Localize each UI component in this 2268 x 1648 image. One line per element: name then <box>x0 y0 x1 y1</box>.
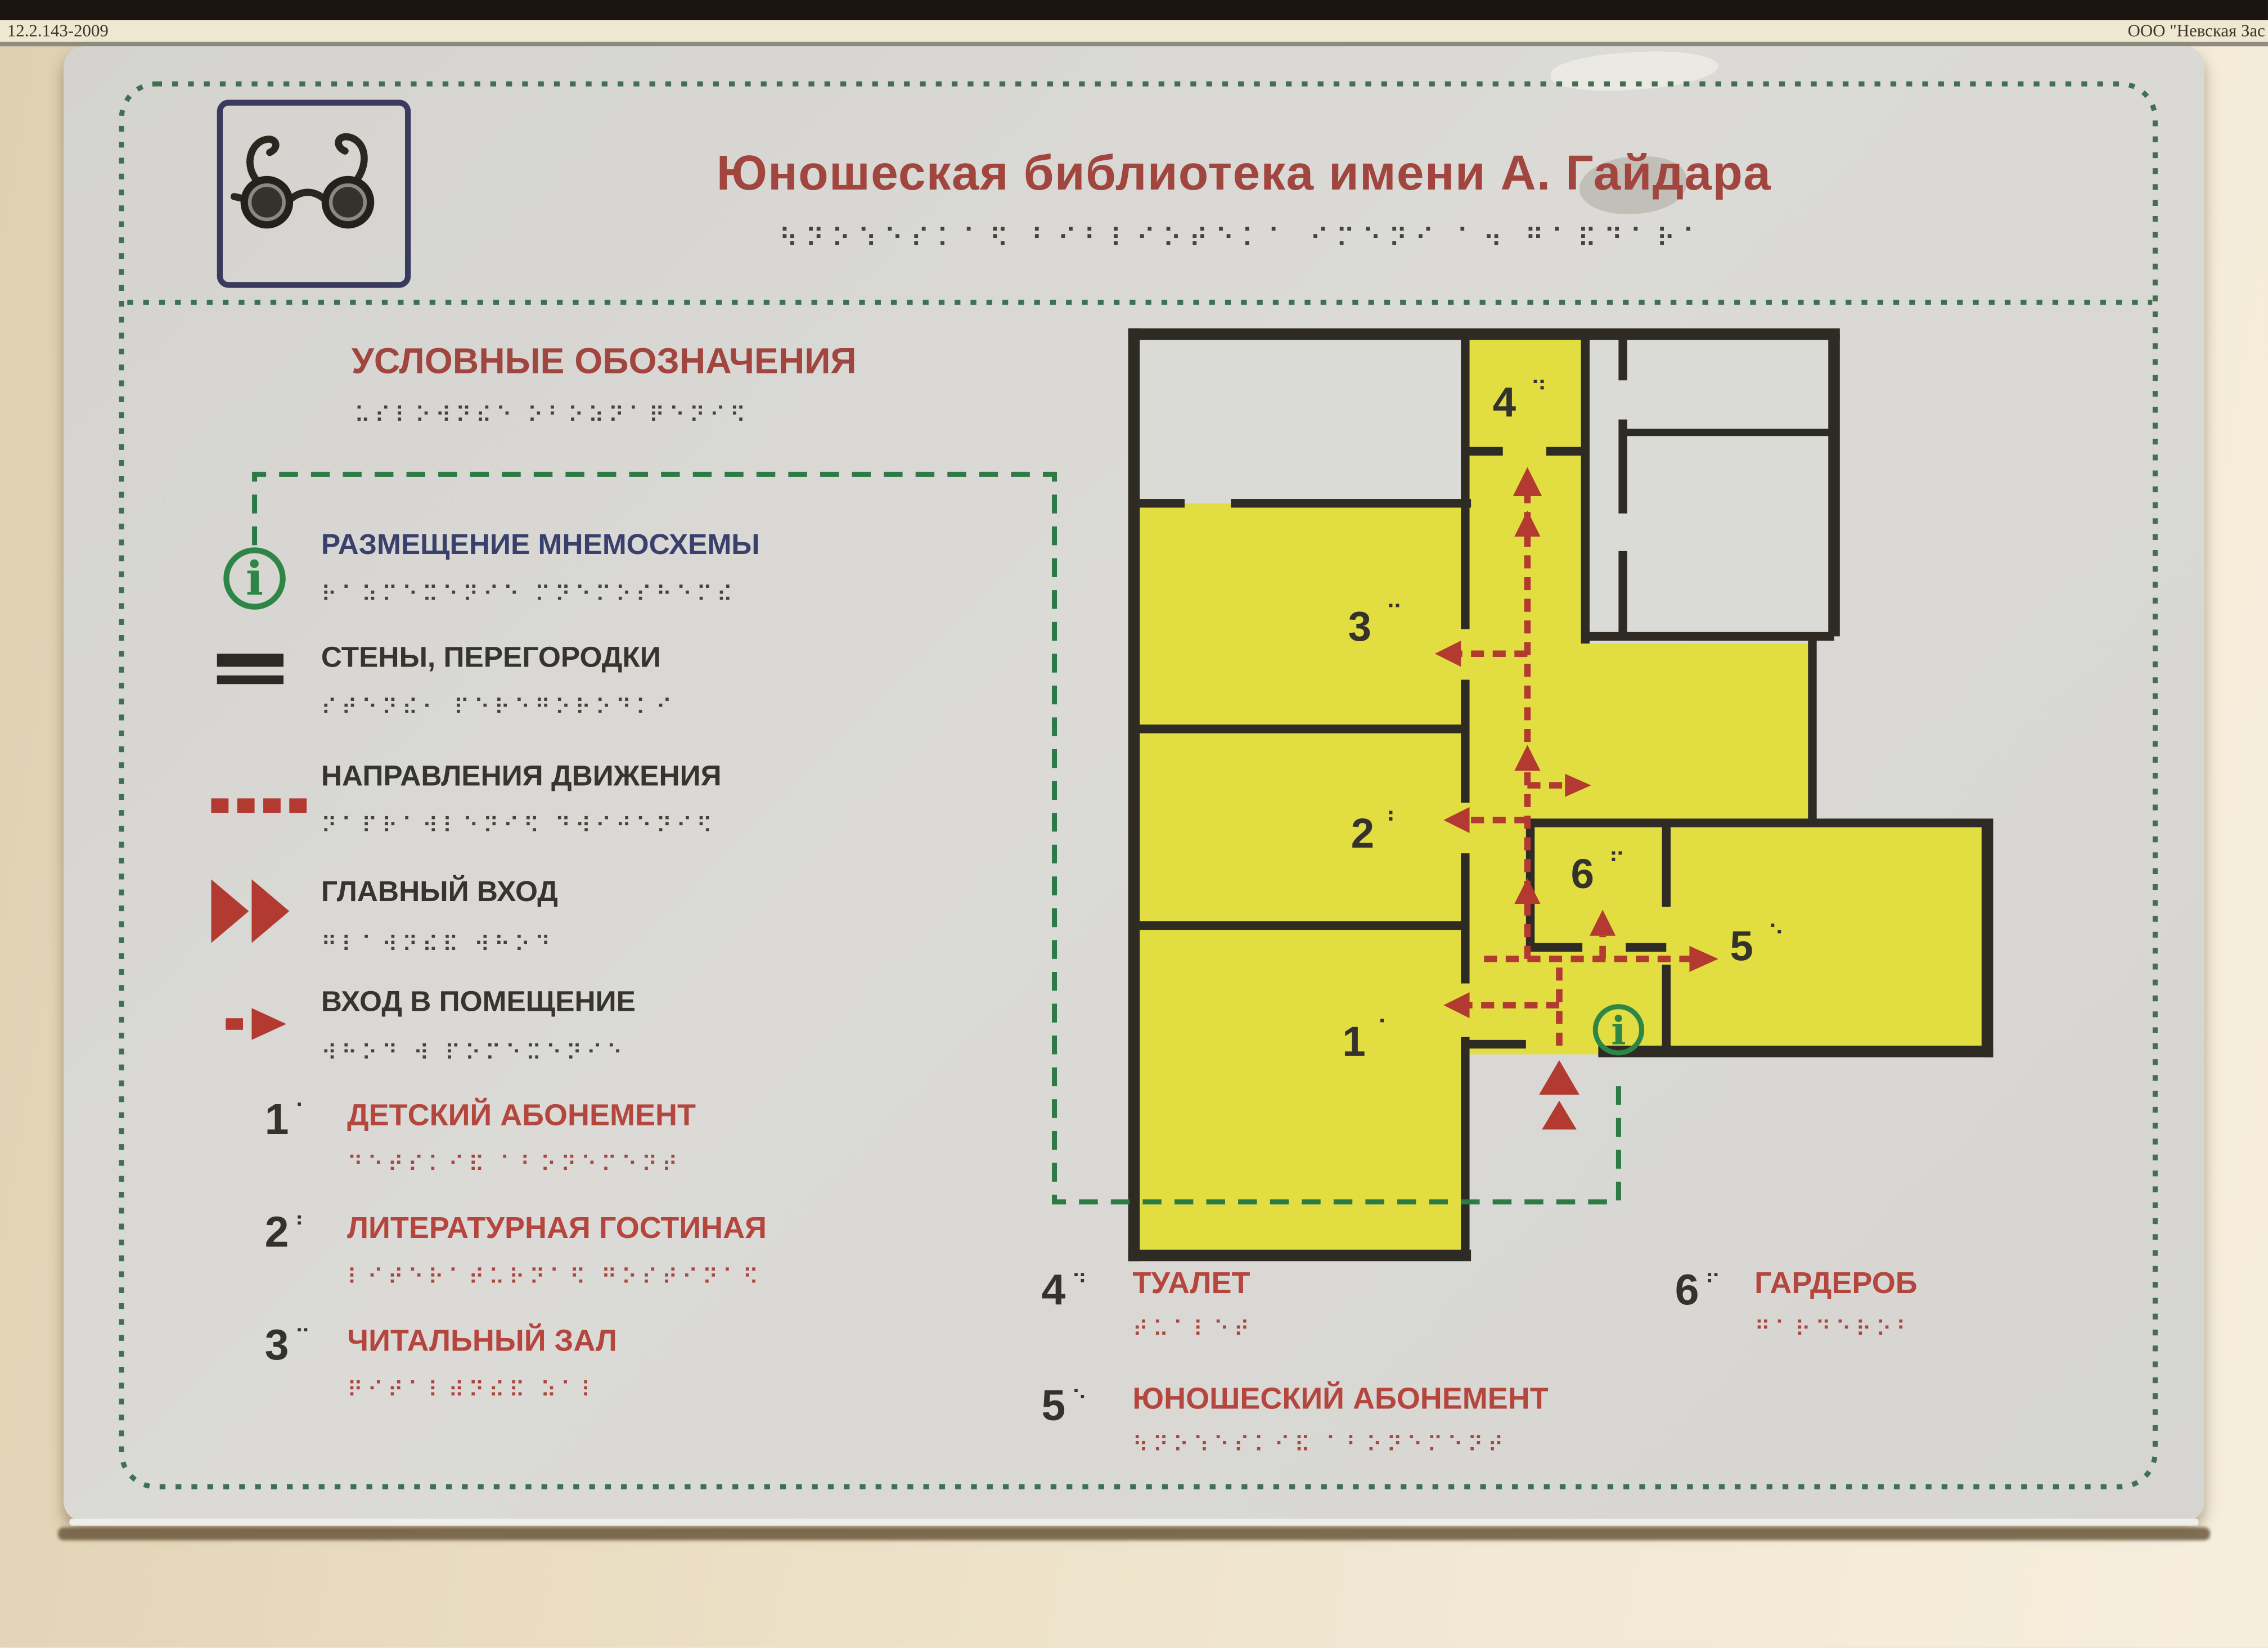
sign-dashed-border <box>121 84 2155 1487</box>
svg-text:i: i <box>1611 1008 1626 1054</box>
photo-of-tactile-sign: 12.2.143-2009 ООО "Невская Зас Юношеская… <box>0 0 2268 1647</box>
info-icon-map: i <box>1595 1007 1641 1054</box>
mnemoscheme-route-line <box>255 474 1619 1201</box>
svg-text:i: i <box>246 552 263 606</box>
green-overlay: i i <box>0 0 2268 1647</box>
info-icon-legend: i <box>226 550 282 606</box>
